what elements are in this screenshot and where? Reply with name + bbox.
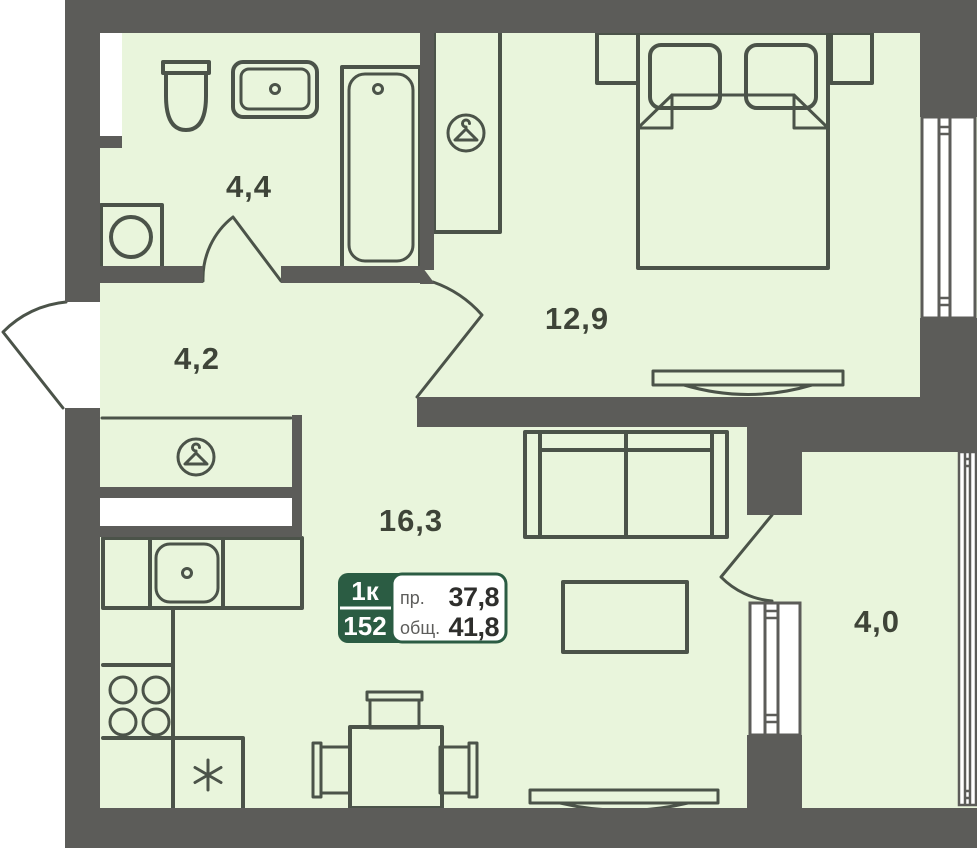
- hall-niche: [100, 498, 292, 526]
- badge-unit-type: 1к: [351, 576, 379, 606]
- badge-living-area-label: пр.: [400, 588, 425, 608]
- entrance-door-arc: [3, 302, 66, 408]
- room-label-bathroom: 4,4: [226, 169, 272, 204]
- room-label-hallway: 4,2: [174, 341, 220, 376]
- bedroom-living-wall: [417, 397, 977, 427]
- balcony-window: [750, 603, 800, 735]
- info-badge: 1к 152 пр. 37,8 общ. 41,8: [338, 573, 507, 643]
- balcony-door-wall: [747, 427, 802, 515]
- bathroom-bottom-wall: [281, 266, 422, 283]
- balcony-glazing: [959, 452, 976, 805]
- bathroom-bottom-wall: [100, 266, 203, 283]
- room-label-living-kitchen: 16,3: [379, 503, 443, 538]
- duct-stub: [100, 136, 122, 148]
- floor-plan-svg: 4,4 4,2 12,9 16,3 4,0 1к 152 пр. 37,8 об…: [0, 0, 977, 848]
- duct-niche: [100, 33, 122, 136]
- balcony-window-wall: [747, 735, 802, 808]
- closet-stub: [292, 415, 302, 537]
- badge-living-area-value: 37,8: [448, 582, 499, 612]
- room-label-bedroom: 12,9: [545, 301, 609, 336]
- badge-unit-number: 152: [343, 611, 386, 641]
- bedroom-window: [922, 117, 975, 318]
- bathroom-right-wall: [420, 33, 434, 270]
- room-label-balcony: 4,0: [854, 604, 900, 639]
- badge-total-area-label: общ.: [400, 618, 440, 638]
- floor-plan-page: 4,4 4,2 12,9 16,3 4,0 1к 152 пр. 37,8 об…: [0, 0, 977, 848]
- badge-total-area-value: 41,8: [448, 612, 499, 642]
